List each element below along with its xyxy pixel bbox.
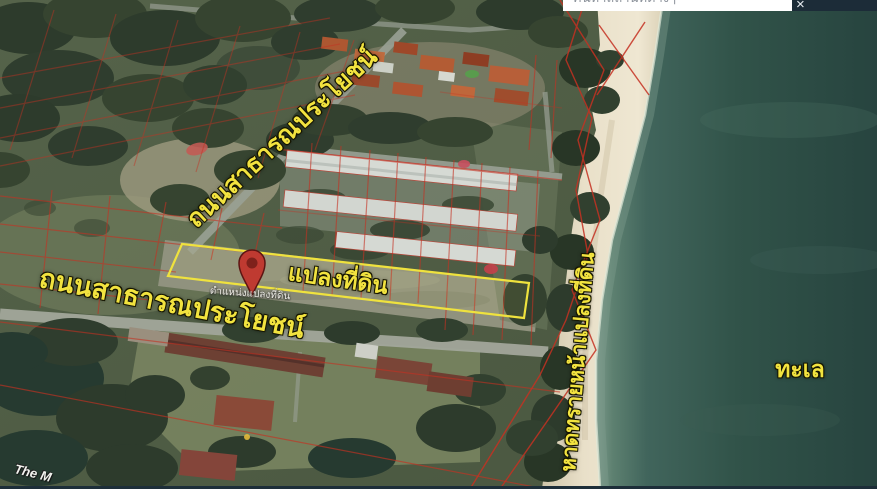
- search-bar: ×: [563, 0, 877, 11]
- close-icon[interactable]: ×: [796, 0, 805, 11]
- search-input[interactable]: [563, 0, 792, 11]
- aerial-imagery: [0, 0, 877, 489]
- label-sea: ทะเล: [775, 352, 824, 388]
- search-bar-buttons: ×: [792, 0, 877, 11]
- map-canvas[interactable]: ถนนสาธารณประโยชน์ ถนนสาธารณประโยชน์ แปลง…: [0, 0, 877, 489]
